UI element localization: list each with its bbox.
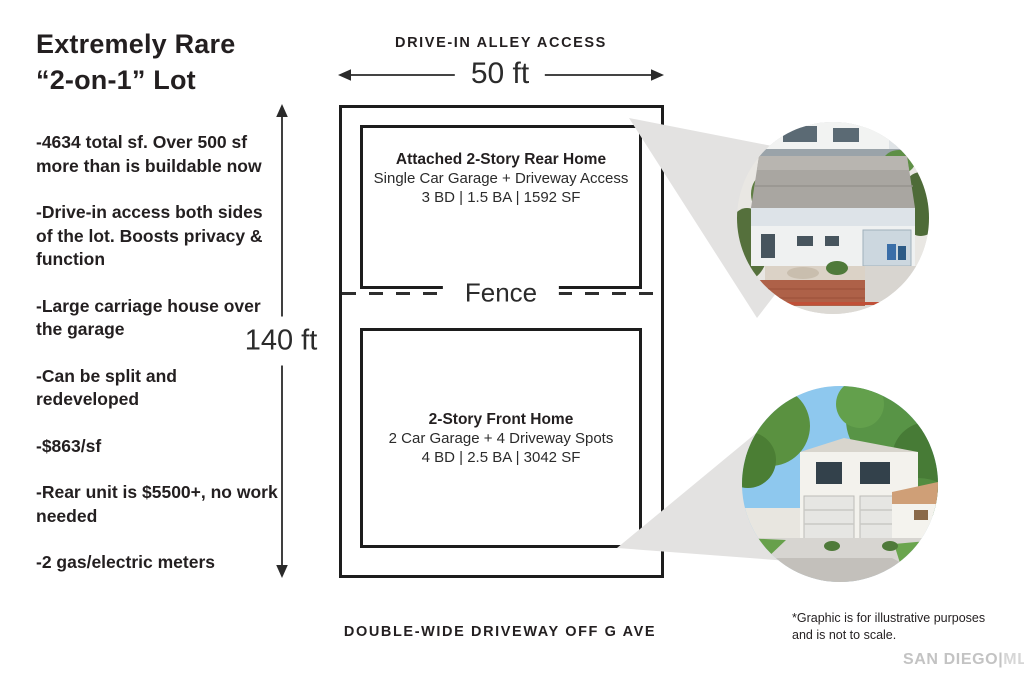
list-item: -Can be split and redeveloped (36, 365, 278, 412)
rear-home-aerial-photo (737, 122, 929, 314)
front-home-garage-info: 2 Car Garage + 4 Driveway Spots (363, 429, 639, 448)
driveway-label: DOUBLE-WIDE DRIVEWAY OFF G AVE (344, 624, 656, 640)
disclaimer-line-1: *Graphic is for illustrative purposes (792, 610, 985, 627)
list-item: -2 gas/electric meters (36, 551, 278, 575)
lot-infographic: Extremely Rare “2-on-1” Lot -4634 total … (0, 0, 1024, 681)
front-home-title: 2-Story Front Home (363, 410, 639, 429)
title-line-2: “2-on-1” Lot (36, 62, 235, 98)
lot-width-value: 50 ft (455, 57, 545, 91)
list-item: -Drive-in access both sides of the lot. … (36, 201, 278, 272)
list-item: -$863/sf (36, 435, 278, 459)
watermark-sandiego: SAN DIEGO (903, 651, 998, 668)
front-home-specs: 4 BD | 2.5 BA | 3042 SF (363, 448, 639, 467)
disclaimer-line-2: and is not to scale. (792, 627, 985, 644)
front-home-box: 2-Story Front Home 2 Car Garage + 4 Driv… (360, 328, 642, 548)
list-item: -Rear unit is $5500+, no work needed (36, 481, 278, 528)
rear-home-box: Attached 2-Story Rear Home Single Car Ga… (360, 125, 642, 289)
lot-depth-value: 140 ft (241, 317, 322, 366)
list-item: -4634 total sf. Over 500 sf more than is… (36, 131, 278, 178)
alley-access-label: DRIVE-IN ALLEY ACCESS (395, 35, 607, 51)
sandiego-mls-watermark: SAN DIEGO|MLS (903, 651, 1024, 669)
title-line-1: Extremely Rare (36, 26, 235, 62)
front-home-street-illustration (742, 386, 938, 582)
scale-disclaimer: *Graphic is for illustrative purposes an… (792, 610, 985, 644)
rear-home-aerial-illustration (737, 122, 929, 314)
front-home-street-photo (742, 386, 938, 582)
rear-home-title: Attached 2-Story Rear Home (363, 150, 639, 169)
page-title: Extremely Rare “2-on-1” Lot (36, 26, 235, 98)
fence-label: Fence (443, 276, 559, 311)
rear-home-garage-info: Single Car Garage + Driveway Access (363, 169, 639, 188)
watermark-mls: MLS (1003, 651, 1024, 668)
rear-home-specs: 3 BD | 1.5 BA | 1592 SF (363, 188, 639, 207)
